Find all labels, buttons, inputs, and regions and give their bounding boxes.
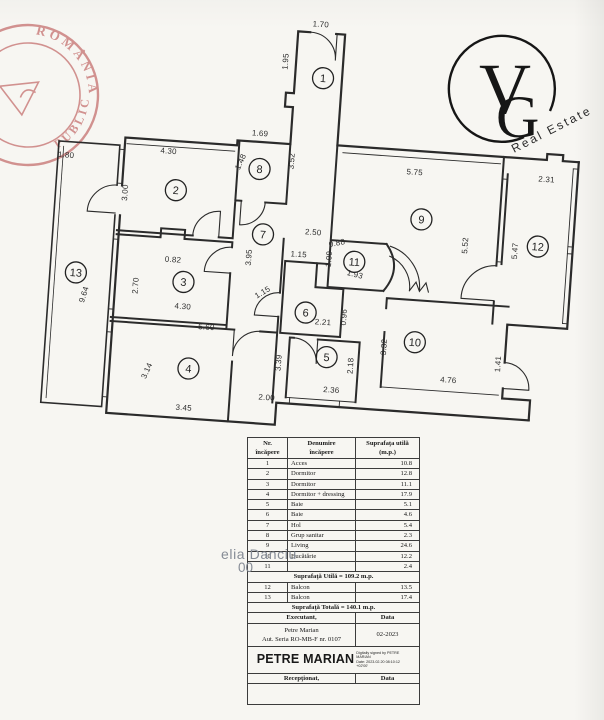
cell-room-area: 5.1: [356, 500, 420, 510]
room-number-4: 4: [185, 363, 192, 375]
table-row: 5Baie5.1: [248, 500, 420, 510]
dim-label: 2.50: [305, 227, 322, 237]
outer-wall-right: [501, 158, 579, 423]
dim-label: 4.30: [174, 301, 191, 311]
executant-date-cell: 02-2023: [356, 623, 420, 646]
interior-walls: [104, 130, 519, 440]
watermark-name: elia Danciu: [221, 546, 297, 562]
cell-room-number: 2: [248, 469, 288, 479]
room-number-2: 2: [172, 185, 179, 197]
room-number-8: 8: [256, 164, 263, 176]
room-number-10: 10: [408, 337, 421, 350]
balcony12-door-arc: [461, 263, 496, 300]
room-number-13: 13: [69, 267, 82, 280]
empty-row: [248, 684, 420, 705]
dim-label: 0.88: [328, 237, 346, 249]
dim-label: 3.14: [139, 361, 154, 380]
dim-label: 3.39: [274, 354, 284, 371]
dim-label: 5.75: [406, 167, 423, 177]
room-number-5: 5: [323, 352, 330, 364]
dim-label: 1.70: [312, 19, 329, 29]
table-header-row: Nr.încăpereDenumireîncăpereSuprafaţa uti…: [248, 438, 420, 459]
dim-label: 5.52: [460, 237, 470, 254]
executant-name-cell: Petre MarianAut. Seria RO-MB-F nr. 0107: [248, 623, 356, 646]
table-row: 3Dormitor11.1: [248, 479, 420, 489]
executant-info-row: Petre MarianAut. Seria RO-MB-F nr. 01070…: [248, 623, 420, 646]
cell-room-area: 12.2: [356, 551, 420, 561]
cell-room-number: 13: [248, 592, 288, 602]
table-row: 8Grup sanitar2.3: [248, 531, 420, 541]
dim-label: 3.32: [379, 338, 389, 355]
cell-room-area: 17.4: [356, 592, 420, 602]
cell-room-area: 4.6: [356, 510, 420, 520]
cell-room-name: Dormitor: [288, 479, 356, 489]
dim-label: 3.00: [120, 184, 130, 201]
stamp-text-romania: ROMÂNIA: [31, 10, 105, 110]
dim-label: 9.64: [77, 285, 90, 304]
cell-room-name: Balcon: [288, 582, 356, 592]
room4-door-arc: [232, 330, 260, 358]
table-header-cell: Denumireîncăpere: [288, 438, 356, 459]
executant-label-row: Executant,Data: [248, 613, 420, 623]
cell-room-area: 11.1: [356, 479, 420, 489]
table-row: 7Hol5.4: [248, 520, 420, 530]
room-number-3: 3: [180, 277, 187, 289]
cell-room-name: Baie: [288, 510, 356, 520]
floor-plan-drawing: ROMÂNIA PUBLIC V G Real Estate: [0, 0, 604, 450]
dim-label: 5.60: [198, 322, 215, 332]
dim-label: 1.09: [324, 250, 334, 267]
balcony13-door-arc: [87, 183, 117, 213]
table-row: 12Balcon13.5: [248, 582, 420, 592]
kitchen-door-arc: [503, 363, 531, 391]
cell-room-name: Balcon: [288, 592, 356, 602]
signature-row: PETRE MARIANDigitally signed by PETRE MA…: [248, 646, 420, 673]
dim-label: 1.41: [493, 355, 503, 372]
table-header-cell: Suprafaţa utilă(m.p.): [356, 438, 420, 459]
dim-label: 1.48: [233, 152, 248, 171]
cell-room-name: Dormitor: [288, 469, 356, 479]
cell-room-area: 13.5: [356, 582, 420, 592]
total-row: Suprafaţă Totală = 140.1 m.p.: [248, 603, 420, 613]
area-table: Nr.încăpereDenumireîncăpereSuprafaţa uti…: [247, 437, 420, 705]
balcony-13-rail: [46, 146, 64, 397]
dim-label: 2.00: [258, 392, 275, 402]
cell-room-number: 4: [248, 489, 288, 499]
dim-label: 3.45: [175, 403, 192, 413]
cell-room-name: Dormitor + dressing: [288, 489, 356, 499]
signature-note: Digitally signed by PETRE MARIANDate: 20…: [356, 651, 410, 669]
table-row: 2Dormitor12.8: [248, 469, 420, 479]
cell-room-area: 24.6: [356, 541, 420, 551]
svg-text:ROMÂNIA: ROMÂNIA: [31, 10, 105, 110]
room-number-12: 12: [531, 241, 544, 254]
cell-room-area: 2.3: [356, 531, 420, 541]
dim-label: 2.21: [315, 317, 332, 327]
cell-room-name: Bucătărie: [288, 551, 356, 561]
dim-label: 1.15: [290, 249, 307, 259]
cell-room-name: Hol: [288, 520, 356, 530]
watermark-number: 00: [238, 560, 253, 575]
subtotal-row: Suprafaţă Utilă = 109.2 m.p.: [248, 572, 420, 582]
cell-room-number: 5: [248, 500, 288, 510]
room-number-11: 11: [348, 256, 360, 269]
cell-room-area: 5.4: [356, 520, 420, 530]
cell-room-area: 10.8: [356, 459, 420, 469]
stamp-emblem: [0, 75, 47, 119]
cell-room-name: [288, 561, 356, 571]
cell-room-number: 12: [248, 582, 288, 592]
cell-room-number: 3: [248, 479, 288, 489]
room8-door-arc: [240, 201, 266, 227]
cell-room-number: 8: [248, 531, 288, 541]
room-number-7: 7: [259, 229, 266, 241]
table-row: 4Dormitor + dressing17.9: [248, 489, 420, 499]
entrance-door-arc: [309, 32, 337, 60]
room-number-6: 6: [302, 307, 309, 319]
dim-label: 2.18: [345, 357, 355, 374]
table-row: 112.4: [248, 561, 420, 571]
table-row: 1Acces10.8: [248, 459, 420, 469]
cell-room-name: Grup sanitar: [288, 531, 356, 541]
table-row: 6Baie4.6: [248, 510, 420, 520]
dim-label: 2.31: [538, 174, 555, 184]
outer-wall-bottom-left: [106, 215, 541, 442]
dim-label: 2.70: [131, 277, 141, 294]
dim-label: 1.69: [252, 128, 269, 138]
dim-label: 1.95: [281, 53, 291, 70]
cell-room-area: 17.9: [356, 489, 420, 499]
dim-label: 3.95: [244, 249, 254, 266]
cell-room-number: 11: [248, 561, 288, 571]
table-header-cell: Nr.încăpere: [248, 438, 288, 459]
dim-label: 2.36: [323, 385, 340, 395]
dim-label: 4.30: [160, 146, 177, 156]
cell-room-name: Living: [288, 541, 356, 551]
cell-room-number: 1: [248, 459, 288, 469]
cell-room-number: 7: [248, 520, 288, 530]
vg-real-estate-logo: V G Real Estate: [449, 36, 594, 156]
room-number-1: 1: [320, 73, 327, 85]
dim-label: 4.76: [440, 375, 457, 385]
room5-door-arc: [292, 338, 318, 364]
room3-door-arc: [204, 245, 232, 273]
signature-name: PETRE MARIAN: [257, 652, 355, 666]
dim-label: 3.52: [287, 152, 297, 169]
cell-room-area: 12.8: [356, 469, 420, 479]
table-row: 13Balcon17.4: [248, 592, 420, 602]
room-number-9: 9: [418, 214, 425, 226]
room2-door-arc: [193, 210, 221, 238]
dim-label: 5.47: [510, 242, 520, 259]
dim-label: 0.96: [339, 308, 349, 325]
dim-label: 0.82: [165, 255, 182, 265]
cell-room-name: Baie: [288, 500, 356, 510]
receptionat-label-row: Recepţionat,Data: [248, 673, 420, 683]
cell-room-area: 2.4: [356, 561, 420, 571]
cell-room-name: Acces: [288, 459, 356, 469]
cell-room-number: 6: [248, 510, 288, 520]
dim-label: 1.80: [58, 150, 75, 160]
scanned-floorplan-page: ROMÂNIA PUBLIC V G Real Estate: [0, 0, 604, 720]
